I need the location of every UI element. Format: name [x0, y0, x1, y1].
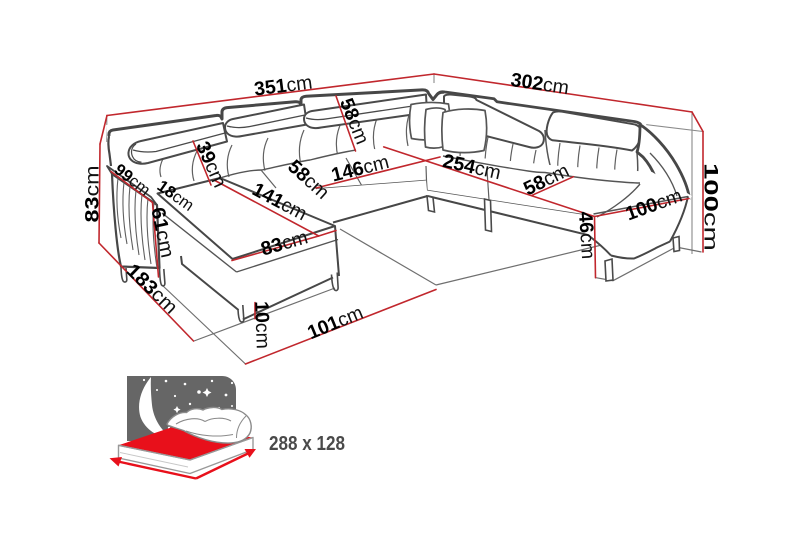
svg-text:46cm: 46cm	[574, 211, 599, 260]
svg-text:83cm: 83cm	[82, 166, 104, 223]
svg-text:100cm: 100cm	[700, 163, 722, 251]
svg-text:10cm: 10cm	[250, 301, 274, 349]
svg-text:288 x 128: 288 x 128	[269, 432, 345, 455]
